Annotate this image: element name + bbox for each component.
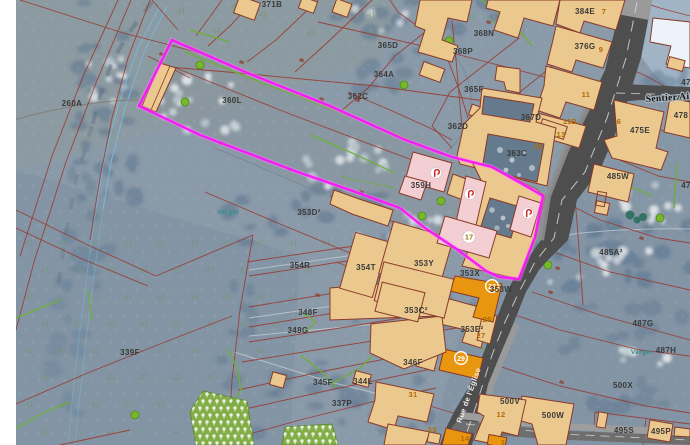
svg-text:339F: 339F xyxy=(120,348,140,357)
svg-text:47: 47 xyxy=(681,181,690,190)
svg-text:33: 33 xyxy=(427,425,436,434)
svg-text:11B: 11B xyxy=(563,117,578,126)
svg-text:353D²: 353D² xyxy=(297,208,321,217)
svg-text:1: 1 xyxy=(501,438,506,445)
svg-text:348G: 348G xyxy=(288,326,309,335)
svg-text:478: 478 xyxy=(674,111,689,120)
svg-text:344L: 344L xyxy=(353,377,373,386)
svg-text:Verger: Verger xyxy=(217,209,239,216)
svg-text:364A: 364A xyxy=(374,70,395,79)
svg-text:27: 27 xyxy=(476,331,485,340)
svg-text:475E: 475E xyxy=(630,126,650,135)
svg-text:500W: 500W xyxy=(542,411,564,420)
svg-text:365D: 365D xyxy=(378,41,399,50)
svg-text:500V: 500V xyxy=(500,397,520,406)
svg-text:29: 29 xyxy=(457,356,465,363)
svg-text:365F: 365F xyxy=(464,85,484,94)
svg-text:376G: 376G xyxy=(575,42,596,51)
svg-text:25: 25 xyxy=(482,315,491,324)
svg-text:346F: 346F xyxy=(403,358,423,367)
svg-text:485A²: 485A² xyxy=(599,248,623,257)
svg-text:353W: 353W xyxy=(490,285,512,294)
svg-text:17: 17 xyxy=(465,233,473,242)
svg-text:353X: 353X xyxy=(460,269,480,278)
svg-text:13: 13 xyxy=(556,130,565,139)
svg-text:337P: 337P xyxy=(332,399,352,408)
svg-text:485W: 485W xyxy=(607,172,629,181)
svg-text:353C²: 353C² xyxy=(404,306,428,315)
svg-text:363C: 363C xyxy=(507,149,528,158)
svg-text:359H: 359H xyxy=(411,181,432,190)
svg-text:354T: 354T xyxy=(356,263,376,272)
svg-text:15: 15 xyxy=(533,142,542,151)
svg-text:354R: 354R xyxy=(290,261,311,270)
svg-text:487G: 487G xyxy=(633,319,654,328)
svg-text:353Y: 353Y xyxy=(414,259,434,268)
svg-text:7: 7 xyxy=(602,7,607,16)
svg-text:9: 9 xyxy=(599,45,604,54)
svg-text:345F: 345F xyxy=(313,378,333,387)
svg-text:368P: 368P xyxy=(453,47,473,56)
svg-text:495S: 495S xyxy=(614,426,634,435)
svg-text:Verger: Verger xyxy=(631,349,653,356)
svg-text:6: 6 xyxy=(617,117,622,126)
svg-text:384E: 384E xyxy=(575,7,595,16)
svg-text:500X: 500X xyxy=(613,381,633,390)
svg-text:495P: 495P xyxy=(651,427,671,436)
svg-text:371B: 371B xyxy=(262,0,283,9)
svg-text:11: 11 xyxy=(582,90,591,99)
svg-text:14: 14 xyxy=(460,434,470,443)
svg-text:260A: 260A xyxy=(62,99,83,108)
svg-text:47: 47 xyxy=(681,78,690,87)
svg-text:31: 31 xyxy=(408,390,417,399)
svg-text:362C: 362C xyxy=(348,92,369,101)
svg-text:362D: 362D xyxy=(448,122,469,131)
svg-text:368N: 368N xyxy=(474,29,495,38)
svg-text:348F: 348F xyxy=(298,308,318,317)
svg-text:360L: 360L xyxy=(222,96,242,105)
svg-text:367D: 367D xyxy=(521,113,542,122)
svg-text:12: 12 xyxy=(496,410,505,419)
svg-text:487H: 487H xyxy=(656,346,677,355)
